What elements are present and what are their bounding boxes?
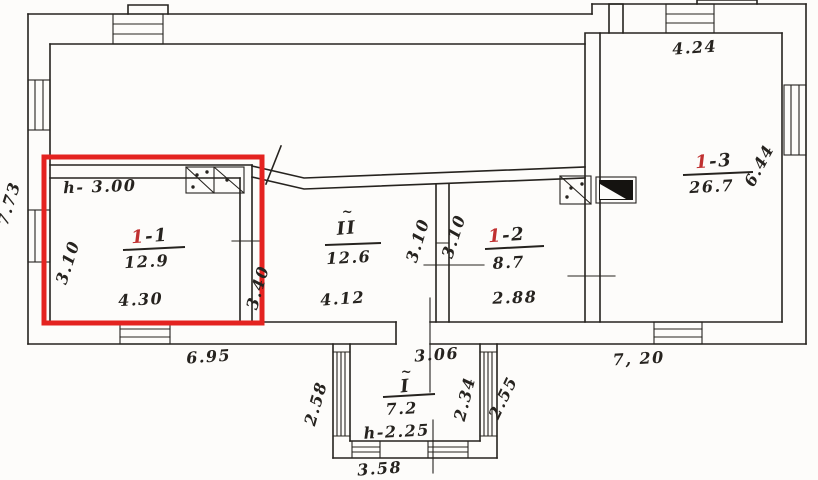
annex-left-dim: 2.58 bbox=[300, 379, 331, 428]
wall-corridor-lower bbox=[252, 177, 585, 189]
room-1-1-area: 12.9 bbox=[124, 251, 170, 272]
room-1-3-labels: 4.24 1-3 26.7 6.44 bbox=[672, 36, 779, 197]
wall-corridor-upper bbox=[252, 166, 585, 178]
left-side-dim: 7.73 bbox=[0, 179, 24, 228]
annex-wall-bottom bbox=[333, 441, 497, 458]
room-1-3-area: 26.7 bbox=[688, 176, 735, 197]
stove-room11 bbox=[186, 167, 244, 193]
room-1-1-width-dim: 4.30 bbox=[118, 289, 164, 310]
room-1-2-number-rest: -2 bbox=[501, 224, 525, 247]
room-1-2-area: 8.7 bbox=[491, 252, 525, 273]
room-1-2-number-red: 1 bbox=[487, 225, 502, 247]
annex-window-bottom-b bbox=[428, 441, 468, 458]
room-1-3-number: 1-3 bbox=[694, 150, 732, 174]
room-II-fraction-line bbox=[326, 243, 380, 245]
room-1-1-number: 1-1 bbox=[130, 225, 168, 249]
window-bottom-right bbox=[654, 322, 702, 344]
annex-bottom-dim: 3.58 bbox=[357, 457, 403, 479]
stove-room13-black bbox=[596, 177, 636, 203]
room-1-3-number-red: 1 bbox=[694, 151, 709, 173]
room-1-2-width-dim: 2.88 bbox=[491, 287, 538, 308]
annex-height-note: h-2.25 bbox=[363, 420, 430, 442]
annex-number: I bbox=[398, 376, 411, 398]
room-1-1-number-red: 1 bbox=[130, 226, 145, 248]
annex-area: 7.2 bbox=[385, 398, 418, 419]
room-1-1-height-note: h- 3.00 bbox=[63, 176, 137, 198]
annex-right-inner-dim: 2.34 bbox=[450, 375, 480, 424]
room-1-3-width-top-dim: 4.24 bbox=[672, 36, 718, 58]
window-left-lower bbox=[28, 210, 50, 262]
room-1-3-number-rest: -3 bbox=[708, 150, 732, 173]
chimney-flue-right bbox=[609, 4, 623, 33]
room-1-1-number-rest: -1 bbox=[144, 225, 168, 248]
room-1-1-depth-left-dim: 3.10 bbox=[52, 238, 84, 287]
room-1-3-depth-right-dim: 6.44 bbox=[740, 141, 778, 190]
window-left-upper bbox=[28, 80, 50, 130]
room-II-number: II bbox=[335, 217, 358, 240]
exterior-dim-labels: 7.73 6.95 7, 20 bbox=[0, 179, 665, 369]
room-1-2-number: 1-2 bbox=[487, 224, 525, 248]
bottom-left-dim: 6.95 bbox=[186, 345, 232, 367]
room-II-width-dim: 4.12 bbox=[320, 287, 366, 309]
annex-window-left bbox=[333, 352, 350, 436]
window-top-right bbox=[666, 4, 714, 33]
room-II-area: 12.6 bbox=[326, 247, 372, 268]
annex-right-outer-dim: 2.55 bbox=[484, 373, 521, 423]
floor-plan-drawing: h- 3.00 1-1 12.9 4.30 3.10 3.40 ~ II 12.… bbox=[0, 0, 818, 480]
annex-window-bottom-a bbox=[352, 441, 380, 458]
room-1-2-labels: 1-2 8.7 2.88 bbox=[486, 224, 543, 308]
room-1-1-depth-right-dim: 3.40 bbox=[242, 263, 273, 311]
window-top-left bbox=[113, 14, 163, 44]
annex-opening-dim: 3.06 bbox=[414, 343, 460, 365]
wall-break-slash bbox=[266, 146, 281, 184]
room-II-labels: ~ II 12.6 4.12 3.10 3.10 bbox=[320, 205, 470, 310]
stove-room12 bbox=[560, 176, 591, 204]
wall-dim-right-3-10: 3.10 bbox=[438, 212, 470, 261]
chimney-stub-top-left bbox=[128, 5, 168, 14]
floor-plan-scan: h- 3.00 1-1 12.9 4.30 3.10 3.40 ~ II 12.… bbox=[0, 0, 818, 480]
window-right bbox=[784, 85, 806, 155]
room-1-3-fraction-line bbox=[684, 172, 752, 175]
bottom-right-dim: 7, 20 bbox=[612, 348, 665, 370]
wall-dim-left-3-10: 3.10 bbox=[402, 216, 433, 265]
